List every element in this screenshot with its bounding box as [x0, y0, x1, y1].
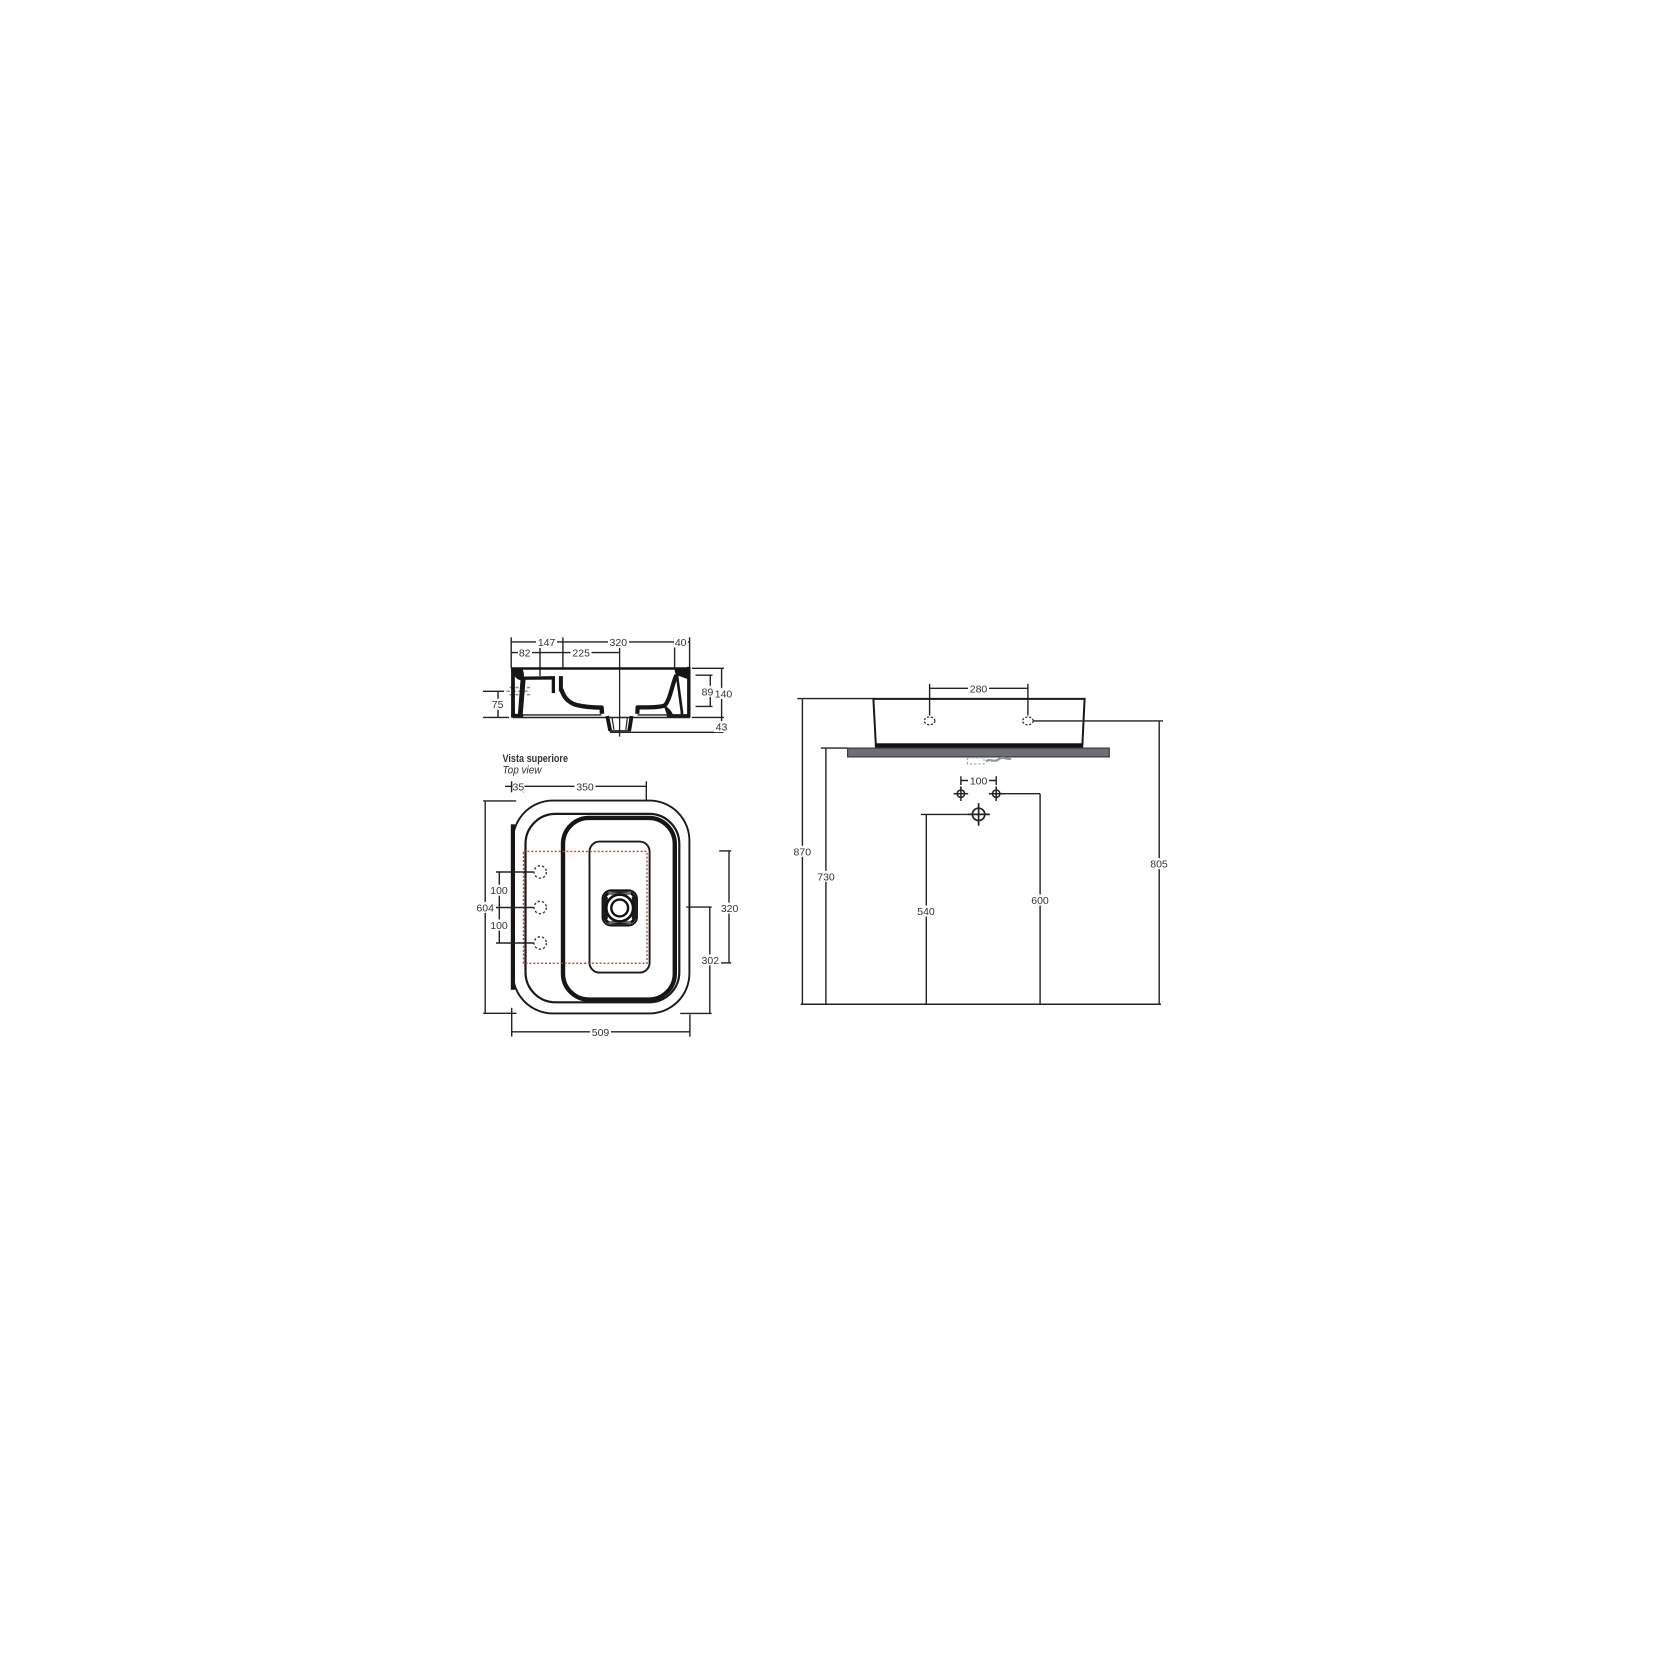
svg-text:43: 43 — [716, 722, 728, 734]
svg-text:870: 870 — [794, 846, 812, 858]
svg-text:600: 600 — [1031, 895, 1049, 907]
svg-text:805: 805 — [1150, 859, 1168, 871]
svg-text:100: 100 — [970, 776, 988, 788]
svg-text:147: 147 — [538, 637, 556, 649]
svg-text:540: 540 — [917, 906, 935, 918]
svg-text:280: 280 — [970, 683, 988, 695]
svg-text:302: 302 — [702, 955, 720, 967]
svg-text:225: 225 — [572, 648, 590, 660]
svg-text:Vista superiore: Vista superiore — [503, 753, 569, 765]
svg-text:100: 100 — [490, 920, 508, 932]
svg-text:350: 350 — [576, 781, 594, 793]
svg-text:604: 604 — [476, 902, 494, 914]
svg-text:Top view: Top view — [503, 765, 543, 777]
svg-text:100: 100 — [490, 885, 508, 897]
svg-text:35: 35 — [513, 781, 525, 793]
svg-text:320: 320 — [610, 637, 628, 649]
svg-text:140: 140 — [715, 688, 733, 700]
svg-text:89: 89 — [702, 686, 714, 698]
svg-text:730: 730 — [817, 871, 835, 883]
svg-text:40: 40 — [675, 637, 687, 649]
svg-text:320: 320 — [721, 903, 739, 915]
svg-text:509: 509 — [592, 1027, 610, 1039]
svg-text:75: 75 — [492, 699, 504, 711]
svg-text:82: 82 — [519, 648, 531, 660]
